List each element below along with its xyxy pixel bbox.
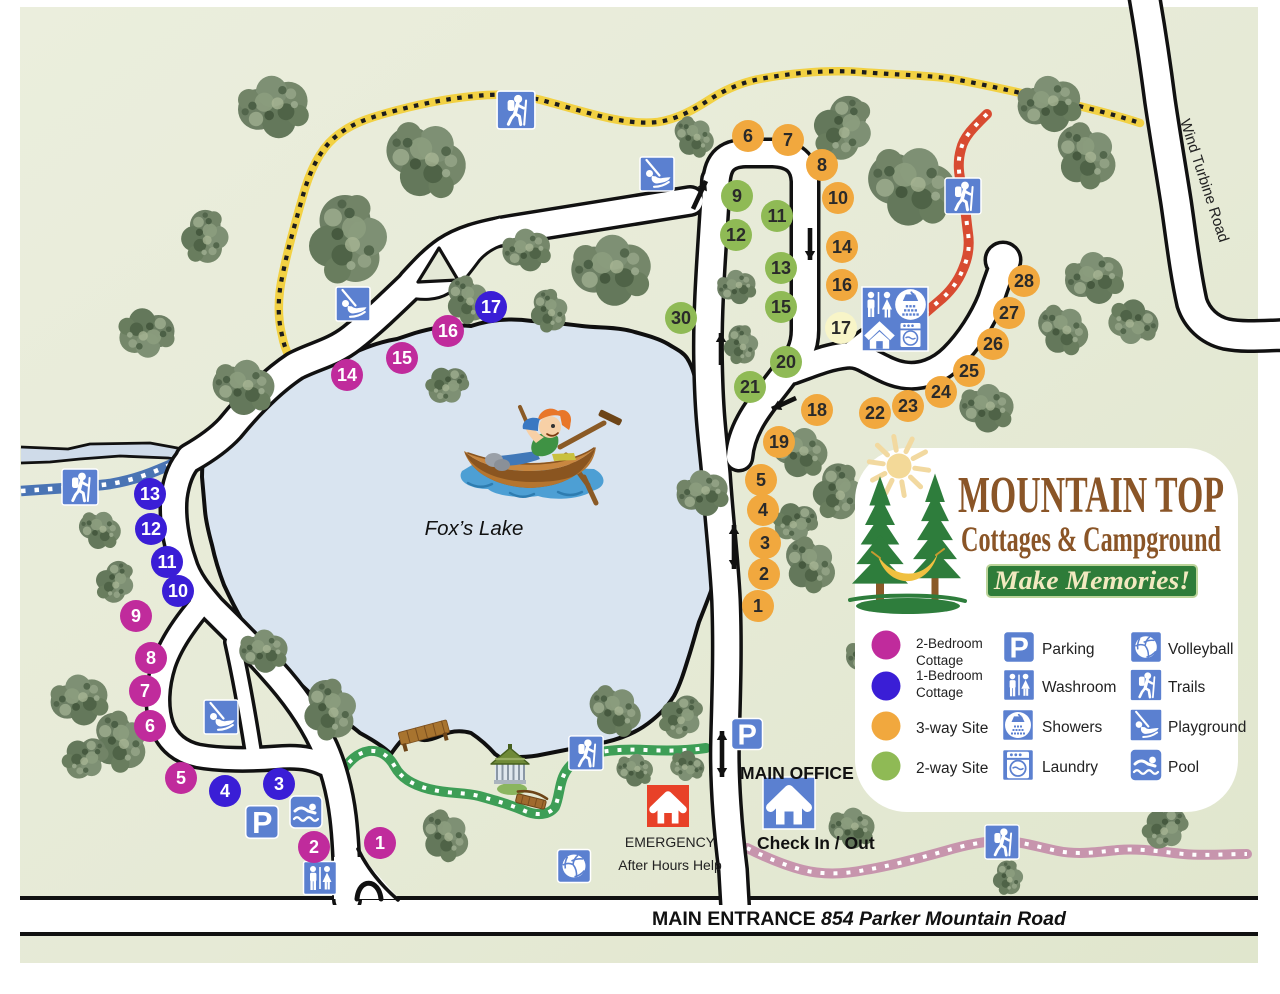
svg-text:14: 14 xyxy=(832,237,852,257)
svg-text:15: 15 xyxy=(392,348,412,368)
svg-text:3-way Site: 3-way Site xyxy=(916,720,988,737)
svg-text:1: 1 xyxy=(375,833,385,853)
svg-text:Cottage: Cottage xyxy=(916,653,963,668)
svg-text:7: 7 xyxy=(783,130,793,150)
svg-text:3: 3 xyxy=(760,533,770,553)
svg-text:28: 28 xyxy=(1014,271,1034,291)
svg-text:17: 17 xyxy=(481,297,501,317)
svg-text:11: 11 xyxy=(767,206,786,226)
svg-text:20: 20 xyxy=(776,352,796,372)
svg-text:Trails: Trails xyxy=(1168,679,1206,696)
svg-text:9: 9 xyxy=(732,186,742,206)
svg-text:18: 18 xyxy=(807,400,827,420)
svg-text:27: 27 xyxy=(999,303,1019,323)
svg-text:26: 26 xyxy=(983,334,1003,354)
svg-text:Cottages & Campground: Cottages & Campground xyxy=(961,519,1221,559)
svg-text:Showers: Showers xyxy=(1042,719,1103,736)
svg-text:12: 12 xyxy=(726,225,746,245)
svg-text:8: 8 xyxy=(146,648,156,668)
svg-text:5: 5 xyxy=(756,470,766,490)
svg-text:8: 8 xyxy=(817,155,827,175)
svg-text:Make Memories!: Make Memories! xyxy=(993,566,1190,595)
svg-text:24: 24 xyxy=(931,382,951,402)
svg-text:13: 13 xyxy=(771,258,791,278)
svg-text:5: 5 xyxy=(176,768,186,788)
svg-text:10: 10 xyxy=(828,188,848,208)
svg-text:Playground: Playground xyxy=(1168,719,1246,736)
svg-text:1: 1 xyxy=(753,596,763,616)
svg-text:Volleyball: Volleyball xyxy=(1168,641,1234,658)
svg-text:6: 6 xyxy=(145,716,155,736)
svg-text:2-Bedroom: 2-Bedroom xyxy=(916,636,983,651)
svg-text:2: 2 xyxy=(759,564,769,584)
svg-text:Cottage: Cottage xyxy=(916,685,963,700)
svg-text:Fox’s Lake: Fox’s Lake xyxy=(425,517,524,540)
svg-text:22: 22 xyxy=(865,403,885,423)
svg-text:3: 3 xyxy=(274,774,284,794)
svg-text:Laundry: Laundry xyxy=(1042,759,1098,776)
svg-text:MAIN ENTRANCE 854 Parker Mount: MAIN ENTRANCE 854 Parker Mountain Road xyxy=(652,908,1067,930)
svg-text:After Hours Help: After Hours Help xyxy=(618,857,722,873)
svg-text:Pool: Pool xyxy=(1168,759,1199,776)
svg-text:1-Bedroom: 1-Bedroom xyxy=(916,668,983,683)
svg-text:EMERGENCY: EMERGENCY xyxy=(625,834,716,850)
svg-text:21: 21 xyxy=(740,377,760,397)
svg-text:9: 9 xyxy=(131,606,141,626)
svg-text:2-way Site: 2-way Site xyxy=(916,760,988,777)
svg-text:13: 13 xyxy=(140,484,160,504)
svg-text:30: 30 xyxy=(671,308,691,328)
svg-text:7: 7 xyxy=(140,681,150,701)
svg-text:10: 10 xyxy=(168,581,188,601)
svg-text:Check In / Out: Check In / Out xyxy=(757,833,875,853)
svg-text:4: 4 xyxy=(758,500,768,520)
svg-text:Washroom: Washroom xyxy=(1042,679,1116,696)
svg-text:19: 19 xyxy=(769,432,789,452)
svg-text:17: 17 xyxy=(831,318,851,338)
svg-text:15: 15 xyxy=(771,297,791,317)
svg-text:2: 2 xyxy=(309,837,319,857)
svg-text:25: 25 xyxy=(959,361,979,381)
svg-text:16: 16 xyxy=(832,275,852,295)
svg-text:23: 23 xyxy=(898,396,918,416)
svg-text:Parking: Parking xyxy=(1042,641,1095,658)
svg-text:4: 4 xyxy=(220,781,230,801)
svg-text:MAIN OFFICE: MAIN OFFICE xyxy=(740,763,854,783)
svg-text:12: 12 xyxy=(141,519,161,539)
svg-text:16: 16 xyxy=(438,321,458,341)
svg-text:14: 14 xyxy=(337,365,357,385)
svg-text:MOUNTAIN TOP: MOUNTAIN TOP xyxy=(958,467,1224,524)
svg-text:6: 6 xyxy=(743,126,753,146)
svg-text:11: 11 xyxy=(157,552,176,572)
